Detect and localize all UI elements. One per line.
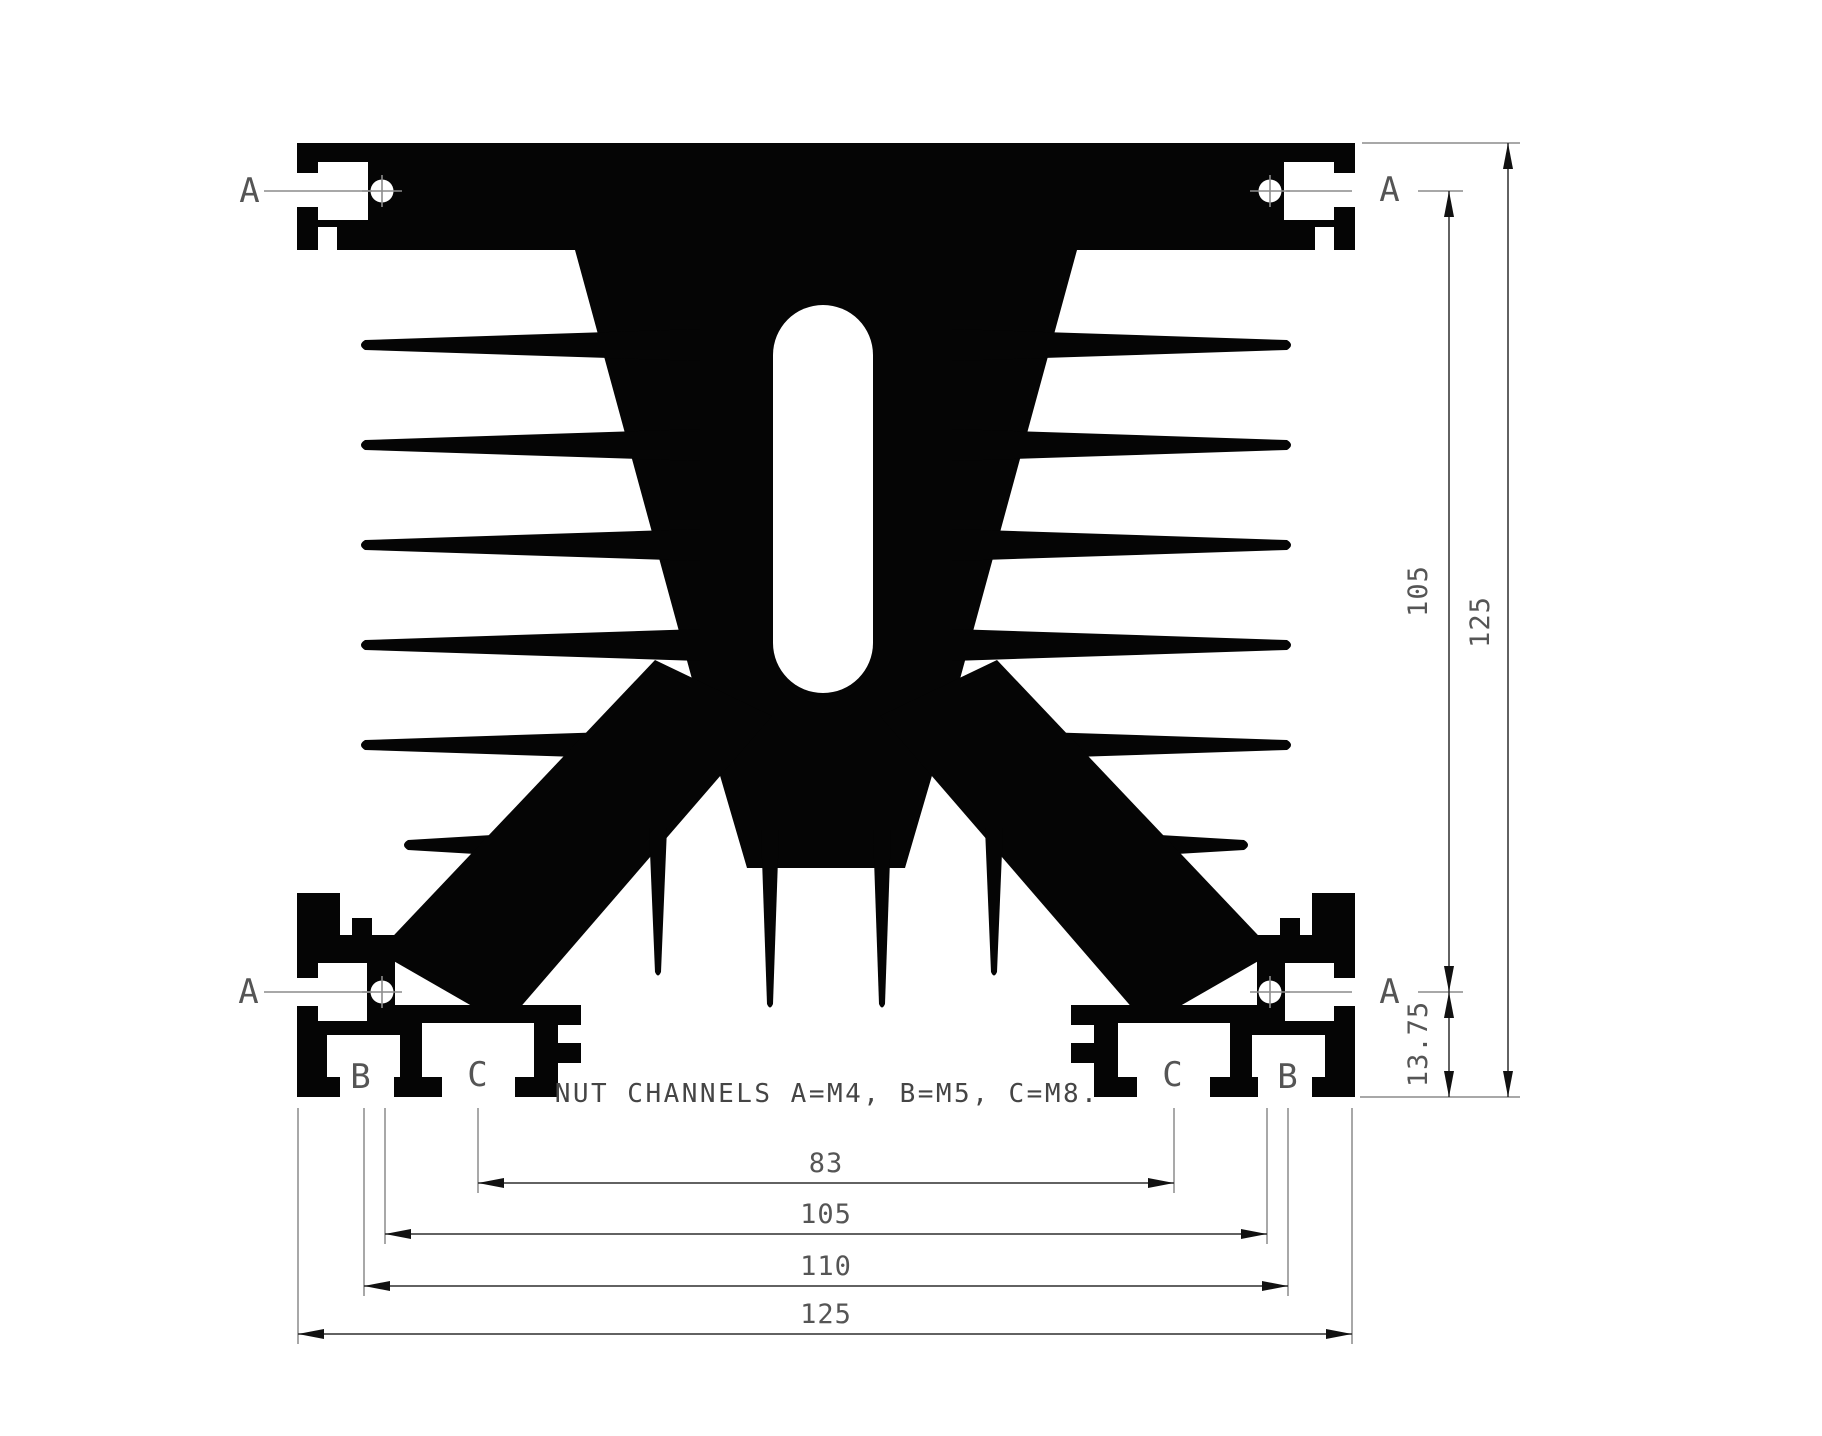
fin-left-3 [361,529,700,561]
foot-left-step [352,918,372,937]
label-channel-c-right: C [1162,1055,1183,1095]
arrow-110-right [1262,1281,1288,1291]
label-channel-c-left: C [467,1055,488,1095]
dim-text-83: 83 [809,1148,844,1179]
dim-text-125-vertical: 125 [1465,596,1496,648]
arrow-110-left [364,1281,390,1291]
arrow-83-right [1148,1178,1174,1188]
arrow-105v-bottom [1444,966,1454,992]
technical-drawing-page: A A A A B C C B 105 125 13.75 83 105 110… [0,0,1822,1436]
dim-text-125-bottom: 125 [800,1299,852,1330]
fin-right-3 [952,529,1291,561]
heatsink-section-drawing: A A A A B C C B 105 125 13.75 83 105 110… [0,0,1822,1436]
label-channel-b-left: B [350,1057,371,1097]
nut-channels-note: NUT CHANNELS A=M4, B=M5, C=M8. [555,1079,1100,1109]
arrow-83-left [478,1178,504,1188]
dim-text-1375: 13.75 [1403,1001,1434,1087]
arrow-105b-right [1241,1229,1267,1239]
label-channel-a-top-right: A [1379,170,1400,210]
label-channel-a-bottom-left: A [238,972,259,1012]
arrow-105b-left [385,1229,411,1239]
label-channel-a-bottom-right: A [1379,972,1400,1012]
arrow-125b-right [1326,1329,1352,1339]
foot-left-tooth-2 [558,1043,581,1063]
fin-left-2 [361,429,700,461]
dim-text-105-bottom: 105 [800,1199,852,1230]
arrow-125v-bottom [1503,1071,1513,1097]
arrow-125v-top [1503,143,1513,169]
foot-left-tooth-1 [558,1005,581,1025]
center-slot-cutout [773,305,873,693]
dim-text-105-vertical: 105 [1403,565,1434,617]
fin-right-1 [952,329,1291,361]
foot-right-tooth-2 [1071,1043,1094,1063]
spike-1 [649,828,667,976]
arrow-1375-top [1444,992,1454,1018]
foot-left-tower [297,893,340,937]
channel-a-top-right-mouth [1334,173,1355,207]
arrow-105v-top [1444,191,1454,217]
fin-left-4 [361,629,700,661]
fin-right-4 [952,629,1291,661]
foot-right-step [1280,918,1300,937]
label-channel-b-right: B [1277,1057,1298,1097]
arrow-1375-bottom [1444,1071,1454,1097]
label-channel-a-top-left: A [239,171,260,211]
foot-right-tooth-1 [1071,1005,1094,1025]
dim-text-110: 110 [800,1251,852,1282]
spike-2 [761,830,779,1008]
foot-right-tower [1312,893,1355,937]
fin-left-1 [361,329,700,361]
flange-shape [297,143,1355,250]
spike-4 [985,828,1003,976]
channel-a-top-left-mouth [297,173,318,207]
flange-left-notch [318,227,337,250]
arrow-125b-left [298,1329,324,1339]
spike-3 [873,830,891,1008]
flange-right-notch [1315,227,1334,250]
fin-right-2 [952,429,1291,461]
